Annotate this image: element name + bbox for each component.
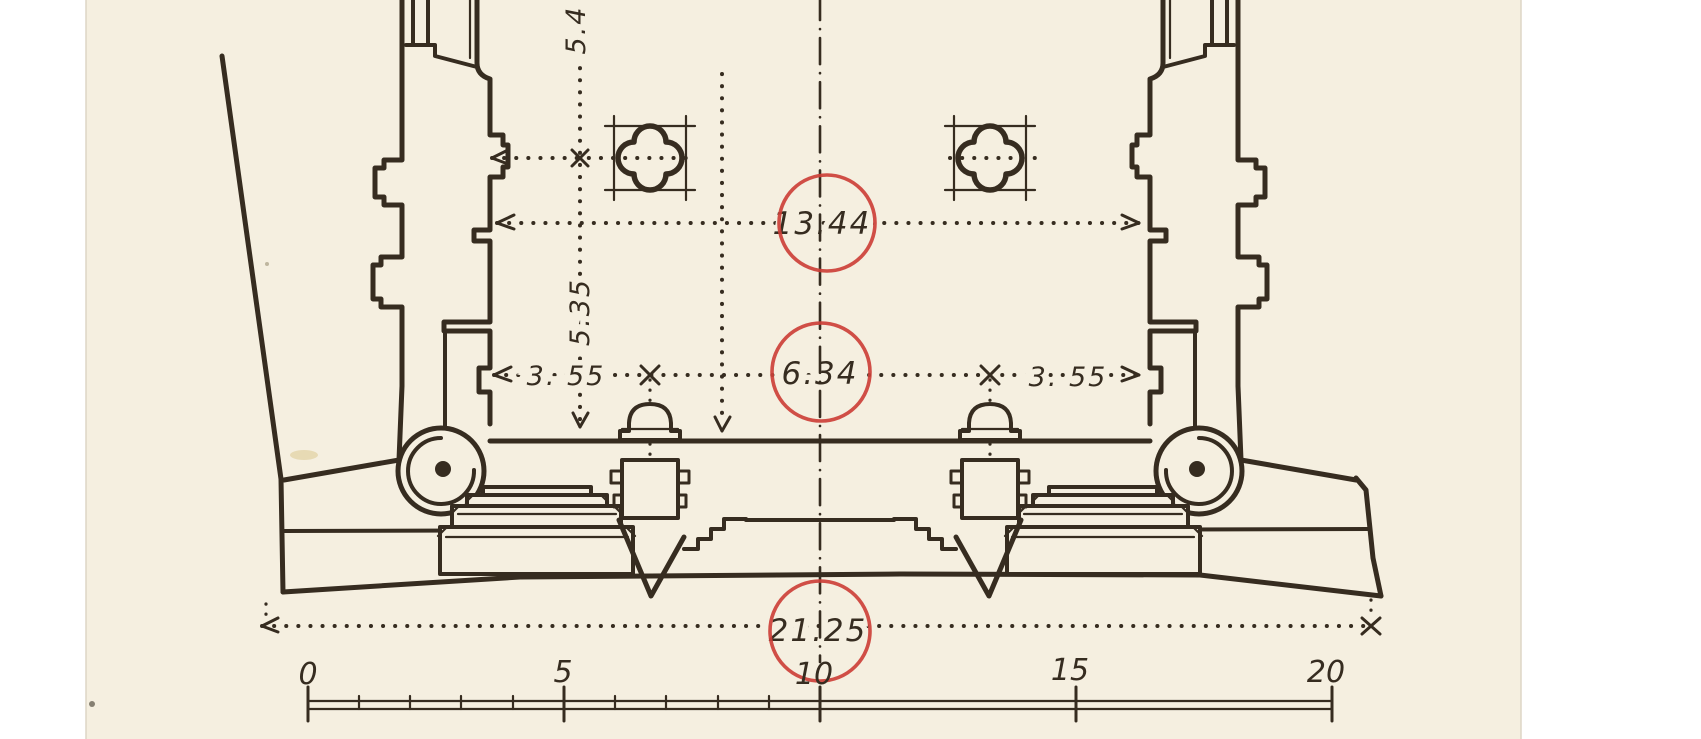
margin-right	[1521, 0, 1701, 739]
scale-label-0: 0	[298, 657, 317, 692]
scale-label-15: 15	[1051, 653, 1089, 688]
scale-label-20: 20	[1307, 655, 1345, 690]
dimension-label-total-width: 21.25	[769, 613, 868, 649]
dimension-label-right-bay: 3. 55	[1029, 362, 1108, 393]
paper-speck	[89, 701, 95, 707]
dimension-label-upper-width: 13.44	[773, 206, 872, 242]
paper-stain	[290, 450, 318, 460]
dimension-label-vertical-side: 5.35	[565, 278, 596, 346]
architectural-plan-scan: 13.44 6.34 3. 55 3. 55 21.25 5.35 5.4 0 …	[0, 0, 1701, 739]
paper-speck	[265, 262, 269, 266]
scale-label-5: 5	[553, 655, 572, 690]
dimension-label-vertical-top: 5.4	[561, 6, 592, 55]
dimension-label-left-bay: 3. 55	[527, 361, 606, 392]
margin-left	[0, 0, 86, 739]
scale-label-10: 10	[795, 657, 833, 692]
facade-plan-drawing: 13.44 6.34 3. 55 3. 55 21.25 5.35 5.4 0 …	[0, 0, 1701, 739]
